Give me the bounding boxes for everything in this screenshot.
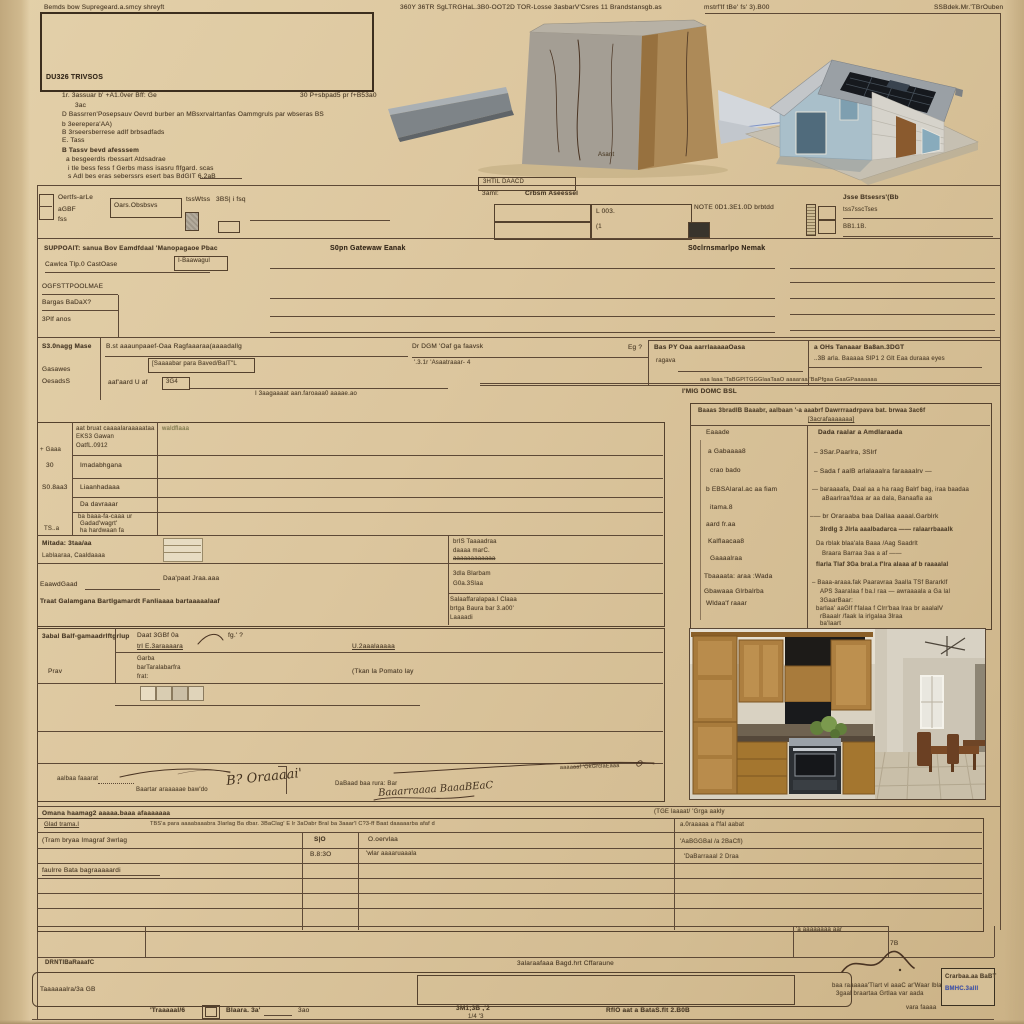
rule-line [37, 683, 663, 684]
panel-bullet: Da rblak blaa'ala Baaa /Aag Saadrlt [816, 541, 918, 548]
rule-line [674, 818, 675, 930]
section-rule [37, 238, 1000, 239]
rule-line [690, 425, 990, 426]
paper-edge-left [0, 0, 30, 1024]
table-cell: faulrre Bata bagraaaaardi [42, 867, 121, 874]
header-text-left: Bemds bow Supregeard.a.smcy shreyft [44, 4, 164, 11]
panel-bullet: 3GaarBaar: [820, 598, 853, 605]
bracket-line [278, 766, 286, 767]
rule-line [100, 337, 101, 400]
table-cell: S0.8aa3 [42, 484, 68, 491]
form-cell-box [417, 975, 795, 1005]
field-label: 'a aaaaaaaa aar [796, 927, 842, 934]
instruction-item: B Tassv bevd afesssem [62, 147, 139, 154]
logo-box-label: DU326 TRIVSOS [46, 74, 103, 82]
table-cell: Da davraaar [80, 501, 118, 508]
table-cell: Traat Galamgana Bartlgamardt Fanliaaaa b… [40, 598, 220, 605]
fill-in-line [843, 218, 993, 219]
table-cell: Laaaadi [450, 615, 473, 622]
rule-line [448, 535, 449, 625]
bracket-line [286, 766, 287, 794]
instruction-item: E. Tass [62, 137, 85, 144]
field-label: fss [58, 216, 67, 223]
field-label: ..3B arla. Baaaaa SlP1 2 Glt Eaa duraaa … [814, 356, 945, 363]
table-cell: ba baaa-fa-caaa ur [78, 514, 132, 521]
fill-in-line [790, 268, 995, 269]
panel-header: Dada raalar a Amdlaraada [818, 429, 902, 436]
table-cell: B.8:3O [310, 851, 331, 858]
field-label: Cawlca Tlp.0 CastOase [45, 261, 117, 268]
photo-thumbnail-icon [688, 222, 710, 238]
instruction-item: B 3rseersberrese adlf brbsadfads [62, 129, 165, 136]
table-row-line [37, 848, 982, 849]
panel-bullet: Braara Barraa 3aa a af —— [822, 551, 902, 558]
rule-line [302, 832, 303, 930]
table-cell: Daa'paat Jraa.aaa [163, 575, 219, 582]
table-cell: aaaaaaaaaaaa [453, 556, 495, 563]
stamp-text: Crarbaa.aa BaBT [945, 974, 996, 981]
table-cell: TS..a [44, 526, 59, 533]
footer-item: 3M1;3B ,'2 [456, 1005, 490, 1012]
header-text-corner: SSBdek.Mr.'TBrOuben [934, 4, 1003, 11]
panel-bullet: flarla Tlaf 3Ga bral.a f'lra alaaa af b … [816, 562, 948, 569]
section-header: S0pn Gatewaw Eanak [330, 245, 406, 253]
table-row-line [72, 455, 663, 456]
field-label: tss7sscTses [843, 207, 878, 214]
footer-item: 'Traaaaal/6 [150, 1007, 185, 1014]
field-label: Jsse Btsesrs'(Bb [843, 194, 899, 201]
stamp-thumbnail-icon [185, 212, 199, 231]
rule-line [705, 13, 1000, 14]
field-label: Bargas BaDaX? [42, 299, 91, 306]
form-cell-box [818, 220, 836, 234]
table-cell: Gadad'wagrt' [80, 521, 117, 528]
panel-list-item: Gbawaaa Glrbalrba [704, 588, 764, 595]
table-cell: 'DaBarraaal 2 Draa [684, 854, 739, 861]
fill-in-line [42, 294, 118, 295]
field-label: 3alaraafaaa Bagd.hrt Cffaraune [517, 960, 614, 967]
instruction-item: 1r. 3assuar b' +A1.0ver Bff: Ge [62, 92, 157, 99]
field-label: Bas PY Oaa aarrlaaaaaOasa [654, 344, 745, 351]
signature-swoosh-icon [118, 764, 233, 780]
section-rule [37, 185, 1000, 186]
fill-in-line [790, 314, 995, 315]
field-label: fg.' ? [228, 632, 243, 639]
field-label: Taaaaaalra/3a GB [40, 986, 96, 993]
table-row-line [72, 512, 663, 513]
rule-line [200, 178, 242, 179]
checkbox-icon [205, 1007, 217, 1017]
field-label: 3gaal braartaa Grtlaa var aada [836, 991, 924, 998]
field-label: Garba [137, 656, 155, 663]
panel-list-item: itama.8 [710, 504, 733, 511]
table-cell: ha hardwaan fa [80, 528, 124, 535]
form-cell-box [163, 538, 203, 562]
field-label: (TGE laaaat/ 'Grga aakly [654, 809, 725, 816]
field-label: aaf'aard U af [108, 379, 148, 386]
table-cell: daaaa marC. [453, 548, 490, 555]
table-cell: Mitada: 3taa/aa [42, 540, 92, 547]
box-photo-caption: Asant [598, 152, 614, 159]
panel-list-item: Eaaade [706, 429, 730, 436]
panel-bullet: – Sada f aalB arlalaaalra faraaaalrv — [814, 468, 932, 475]
swatch-box [140, 686, 156, 701]
table-row-line [37, 863, 982, 864]
rule-line [358, 832, 359, 930]
section-header: S0clrnsmarlpo Nemak [688, 245, 765, 253]
checkbox-icon [39, 194, 54, 220]
field-label: Dr DGM 'Oaf ga faavsk [412, 343, 483, 350]
field-label: DRNTlBaRaaafC [45, 960, 94, 967]
table-cell: aat bruat caaaalaraaaaataa [76, 426, 155, 433]
table-row-line [448, 593, 663, 594]
table-cell: brtga Baura bar 3.a00' [450, 606, 514, 613]
barcode-icon [806, 204, 816, 236]
rule-line [480, 383, 1000, 384]
table-cell: S|O [314, 836, 326, 843]
field-label: trl E.3araaaara [137, 643, 183, 650]
signature-scribble [836, 946, 920, 980]
table-row-line [72, 478, 663, 479]
panel-list-item: Tbaaaata: araa :Wada [704, 573, 772, 580]
instruction-item: b 3eerepera'AA) [62, 121, 112, 128]
instruction-item: 3ac [75, 102, 86, 109]
field-label: Crbsm Aseessel [525, 190, 578, 197]
swatch-box [172, 686, 188, 701]
panel-list-item: aard fr.aa [706, 521, 735, 528]
swatch-box [156, 686, 172, 701]
fill-in-line [790, 282, 995, 283]
field-label: Gasawes [42, 366, 71, 373]
rule-line [163, 552, 201, 553]
panel-list-item: b EBSAlaral.ac aa fiam [706, 486, 777, 493]
fill-in-line [678, 371, 803, 372]
header-text-center: 360Y 36TR SgLTRGHaL.3B0-OOT2D TOR-Losse … [400, 4, 662, 11]
field-label: Prav [48, 668, 62, 675]
table-row-line [37, 832, 982, 833]
section-header: Omana haamag2 aaaaa.baaa afaaaaaaa [42, 810, 170, 817]
field-label: Oars.Obsbsvs [114, 202, 158, 209]
rule-line [793, 926, 794, 957]
signature-flourish-icon [370, 792, 480, 804]
rule-line [807, 425, 808, 628]
field-label: I-Baawagul [178, 258, 210, 265]
table-cell: Lablaaraa, Caaldaaaa [42, 553, 105, 560]
pointer-curve-icon [196, 630, 226, 646]
panel-bullet: APS 3aaralaa f ba.l raa — awraaaala a Ga… [820, 589, 950, 596]
footer-item: Blaara. 3a' [226, 1007, 260, 1014]
table-cell: brIS Taaaadraa [453, 539, 497, 546]
fill-in-line [115, 705, 420, 706]
panel-bullet: barlaa' aaGlf f'falaa f Clrr'baa lraa br… [816, 606, 943, 613]
fill-in-line [790, 330, 995, 331]
fill-in-line [190, 388, 448, 389]
field-label: S3.0nagg Mase [42, 343, 92, 350]
rule-line [648, 340, 649, 385]
table-cell: Imadabhgana [80, 462, 122, 469]
rule-line [700, 440, 701, 620]
scanned-permit-form: Bemds bow Supregeard.a.smcy shreyft 360Y… [0, 0, 1024, 1024]
panel-bullet: 3lrdlg 3 Jlrla aaalbadarca —— ralaarrbaa… [820, 527, 953, 534]
panel-bullet: aBaarlraa'fdaa ar aa dala, Banaafla aa [822, 496, 932, 503]
panel-bullet: — baraaaafa, Daal aa a ha raag Balrf bag… [812, 487, 969, 494]
rule-line [37, 731, 663, 732]
dotted-line [98, 783, 134, 784]
table-cell: 30 [46, 462, 54, 469]
swatch-box [188, 686, 204, 701]
paper-edge-bottom [0, 1020, 1024, 1024]
rule-line [145, 926, 146, 957]
table-cell: Liaanhadaaa [80, 484, 120, 491]
panel-bullet: rBaaalr /faak la irlgalaa 3lraa [820, 614, 903, 621]
fill-in-line [808, 367, 982, 368]
fill-in-line [105, 356, 408, 357]
panel-subheader: [3acrafaaaaaaa] [808, 417, 854, 424]
panel-list-item: Wldaa'f raaar [706, 600, 747, 607]
panel-list-item: crao bado [710, 467, 741, 474]
instruction-item: s Adl bes eras seberssrs esert bas BdGIT… [68, 173, 216, 180]
rule-line [163, 545, 201, 546]
fill-in-line [270, 316, 775, 317]
field-label: Daat 3GBf 0a [137, 632, 179, 639]
paper-edge-right [1004, 0, 1024, 1024]
footer-item: 3ao [298, 1007, 309, 1014]
footer-item: RflO aat a BataS.flt 2.B0B [606, 1007, 690, 1014]
header-text-right: mstrf'lf tBe' fs' 3).B00 [704, 4, 770, 11]
table-cell: EaawdGaad [40, 581, 78, 588]
table-row-line [37, 563, 663, 564]
section-rule [37, 806, 1000, 807]
rule-line [994, 926, 995, 957]
fill-in-line [270, 298, 775, 299]
field-label: BB1.1B. [843, 224, 866, 231]
fill-in-line [85, 589, 160, 590]
form-right-border [1000, 13, 1001, 930]
section-header: 3abal Balf-gamaadrlftgrlup [42, 633, 130, 640]
section-header: SUPPOAIT: sanua Bov Eamdfdaal 'Manopagao… [44, 245, 218, 252]
field-label: Oertfs-arLe [58, 194, 93, 201]
table-cell: (Tram bryaa Imagraf 3wrlag [42, 837, 127, 844]
field-label: [Saaaabar para Baved/BalT"L [152, 361, 237, 368]
panel-bullet: ba'laart [820, 621, 841, 628]
table-row-line [37, 908, 982, 909]
panel-bullet: –— br Oraraaba baa Dallaa aaaal.Garblrk [810, 513, 938, 520]
fill-in-line [42, 875, 160, 876]
table-cell: + Gaaa [40, 447, 61, 454]
field-label: 3Plf anos [42, 316, 71, 323]
field-label: aGBF [58, 206, 76, 213]
rule-line [648, 340, 1000, 341]
instruction-item: 30 P+sbpad5 pr f+B53a0 [300, 92, 377, 99]
field-label: OesadsS [42, 378, 70, 385]
fill-in-line [45, 272, 210, 273]
field-label: 3BS| i fsq [216, 196, 246, 203]
fill-in-line [270, 268, 775, 269]
table-cell: OatfL.0912 [76, 443, 108, 450]
stamp-text-blue: BMHC.3alll [945, 986, 978, 993]
kitchen-photo [689, 628, 986, 800]
panel-bullet: – 3Sar.Paarlra, 3Slrf [814, 449, 877, 456]
table-cell: 3dla Blarbam [453, 571, 491, 578]
fill-in-line [264, 1015, 292, 1016]
table-header-tiny: TBS'a para aaaabaaabra 3larlag Ba dbar. … [150, 821, 435, 827]
rule-line [480, 385, 1000, 386]
instruction-item: i tle bess fess f Gerbs mass isasru flfg… [68, 165, 214, 172]
rule-line [115, 652, 663, 653]
box-photo [388, 20, 793, 182]
field-label: 3aml: [482, 190, 499, 197]
fill-in-line [790, 298, 995, 299]
field-label: frat: [137, 674, 148, 681]
table-cell: EKS3 Gawan [76, 434, 114, 441]
field-label: NOTE 0D1.3E1.0D brbtdd [694, 204, 774, 211]
field-label: L 003. [596, 208, 615, 215]
field-label: I'MIG DOMC BSL [682, 388, 737, 395]
panel-header: Baaas 3bradlB Baaabr, aalbaan '-a aaabrf… [698, 408, 925, 415]
signature-label: aalbaa faaarat [57, 776, 98, 783]
table-cell: 'AaBGGBal /a 2BaCfl) [680, 839, 743, 846]
instruction-item: a besgeerdls rbessart Atdsadrae [66, 156, 166, 163]
fill-in-line [412, 357, 648, 358]
panel-bullet: – Baaa-araaa.fak Paaravraa 3aalla TSf Ba… [812, 580, 948, 587]
bottom-table-box [37, 818, 984, 932]
house-photo [740, 30, 985, 182]
instruction-item: D Bassrren'Posepsauv Oevrd burber an MBs… [62, 111, 324, 118]
field-label: ragava [656, 358, 676, 365]
field-label: Eg ? [628, 344, 642, 351]
table-cell: O.oervlaa [368, 836, 398, 843]
rule-line [118, 295, 119, 337]
main-table-box [37, 422, 665, 627]
panel-list-item: Kalflaacaa8 [708, 538, 744, 545]
field-label: a OHs Tanaaar Ba8an.3DGT [814, 344, 904, 351]
panel-list-item: a Gabaaaa8 [708, 448, 746, 455]
form-cell-box [218, 221, 240, 233]
field-label: (Tkan la Pomato lay [352, 668, 414, 675]
field-label: B.st aaaunpaaef-Oaa Ragfaaaraa(aaaadallg [106, 343, 242, 350]
table-cell: 'wlar aaaaruaaala [366, 851, 417, 858]
table-cell: Salaaffaralapaa.l Claaa [450, 597, 517, 604]
rule-line [37, 926, 888, 927]
field-label: OGFSTTPOOLMAE [42, 283, 103, 290]
rule-line [39, 206, 52, 207]
field-label: tssWtss [186, 196, 210, 203]
fill-in-line [270, 332, 775, 333]
fill-in-line [843, 236, 993, 237]
table-row-line [37, 535, 663, 536]
fill-in-line [250, 220, 390, 221]
table-cell: waldflaaa [162, 426, 189, 433]
field-label: I 3aagaaaat aan.faroaaa0 aaaae.ao [255, 391, 357, 398]
fill-in-line [42, 310, 118, 311]
signature-label: Baartar araaaaae baw'do [136, 787, 208, 794]
table-row-line [72, 497, 663, 498]
field-label: '.3.1r 'Asaatraaar- 4 [414, 360, 471, 367]
table-row-line [37, 878, 982, 879]
table-cell: G0a.3Slaa [453, 581, 483, 588]
field-label: barTaralabarfra [137, 665, 181, 672]
field-label: baa raaaaaa'Tlart vl aaaC ar'Waar lbla [832, 983, 942, 990]
section-rule [37, 337, 1000, 338]
table-row-line [37, 893, 982, 894]
field-label: U.2aaalaaaaa [352, 643, 395, 650]
field-label: 3G4 [166, 379, 178, 386]
table-cell: a.0raaaaa a f'fal aabat [680, 822, 744, 829]
panel-list-item: Gaaaalraa [710, 555, 742, 562]
form-cell-box [818, 206, 836, 220]
rule-line [32, 1019, 994, 1020]
table-header: Glad trama.l [44, 822, 79, 829]
field-label: (1 [596, 224, 602, 231]
field-label: vara faaaa [906, 1005, 936, 1012]
